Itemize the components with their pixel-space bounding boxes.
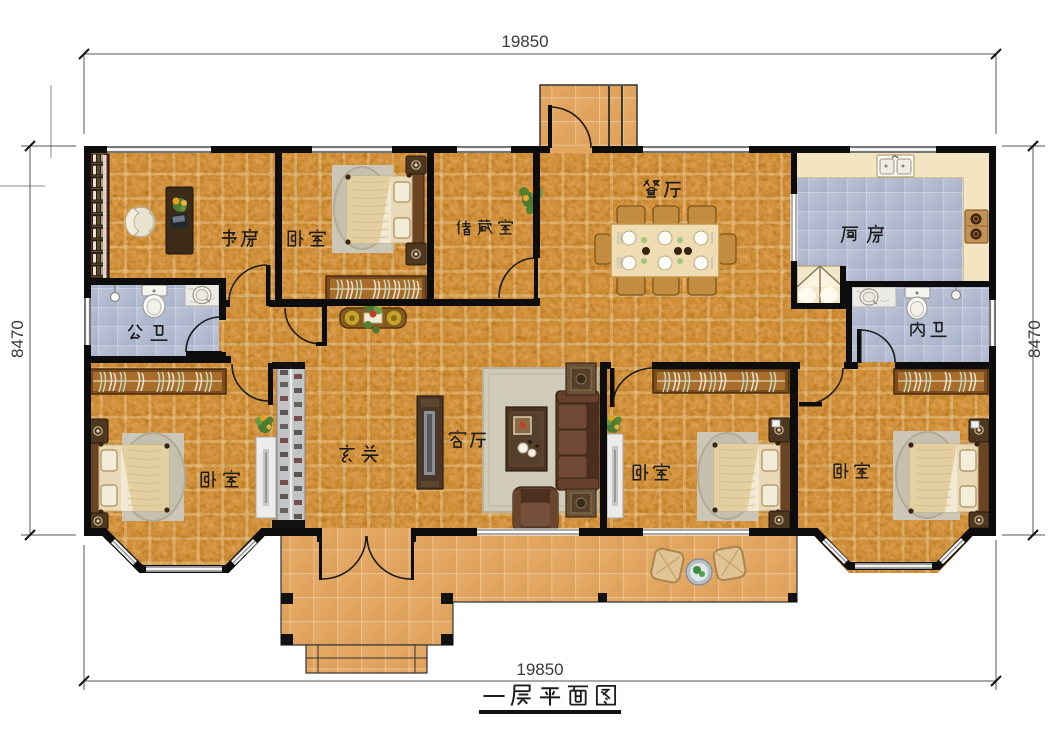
svg-text:19850: 19850	[501, 32, 548, 51]
svg-text:8470: 8470	[1025, 320, 1044, 358]
svg-text:8470: 8470	[8, 320, 27, 358]
svg-text:19850: 19850	[516, 660, 563, 679]
